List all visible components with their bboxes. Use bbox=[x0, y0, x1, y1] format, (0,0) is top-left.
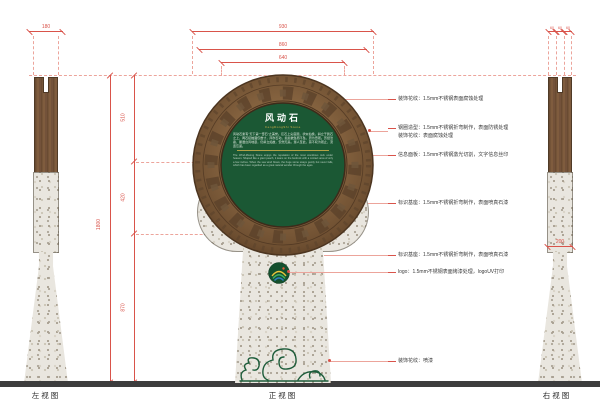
front-height-total-value: 1800 bbox=[97, 219, 102, 230]
front-height-mid-value: 420 bbox=[122, 193, 127, 201]
wave-pattern bbox=[238, 342, 330, 382]
annotation-decor-pattern-ring: 装饰花纹：1.5mm不锈钢表面腐蚀处理 bbox=[398, 96, 483, 104]
right-view-base bbox=[538, 252, 582, 383]
left-view-width-dimension: 180 bbox=[29, 31, 63, 32]
front-outer-width-value: 930 bbox=[192, 25, 374, 30]
annotation-base-upper: 标识基座：1.5mm不锈钢折弯制作，表面喷真石漆 bbox=[398, 200, 508, 208]
extension-line bbox=[58, 36, 59, 75]
sign-info-panel: 风动石 FengDongShi Stone 风动石素有“天下第一奇石”之美誉。巨… bbox=[221, 104, 345, 228]
extension-line bbox=[571, 36, 572, 75]
annotation-decor-etching: 装饰花纹：表面腐蚀处理 bbox=[398, 133, 453, 141]
extension-line bbox=[556, 36, 557, 75]
extension-line bbox=[373, 36, 374, 74]
sign-title: 风动石 bbox=[233, 113, 333, 124]
extension-line bbox=[192, 36, 193, 74]
front-height-top-value: 510 bbox=[122, 113, 127, 121]
left-view-width-value: 180 bbox=[29, 25, 63, 30]
left-view-base bbox=[24, 252, 68, 383]
leader-line bbox=[289, 272, 388, 273]
extension-line bbox=[33, 36, 34, 75]
left-view-fork-notch bbox=[43, 77, 49, 93]
annotation-logo: logo：1.5mm不锈钢表面烤漆处理，logoUV打印 bbox=[398, 269, 504, 277]
right-view-waist-dimension: 200 bbox=[547, 246, 573, 247]
height-chain-inner-line bbox=[134, 75, 135, 383]
front-ring-width-value: 860 bbox=[199, 43, 367, 48]
sign-subtitle: FengDongShi Stone bbox=[233, 125, 333, 129]
front-height-bottom-value: 870 bbox=[122, 303, 127, 311]
right-view-fork-notch bbox=[557, 77, 563, 93]
front-face-width-value: 640 bbox=[221, 56, 345, 61]
leader-line bbox=[330, 361, 388, 362]
height-chain-outer-line bbox=[110, 75, 111, 383]
extension-line bbox=[548, 36, 549, 75]
engineering-drawing: 180 510 420 870 1800 930 860 640 bbox=[0, 0, 600, 406]
annotation-info-panel: 信息面板：1.5mm不锈钢激光切割，文字信息丝印 bbox=[398, 152, 508, 160]
leader-dot bbox=[328, 359, 331, 362]
sign-body-english: The Wind-Moving Stone enjoys the reputat… bbox=[233, 154, 333, 167]
annotation-base-pattern-paint: 装饰花纹：喷漆 bbox=[398, 358, 433, 366]
right-view-leg-dimension: 60 bbox=[564, 31, 572, 32]
left-view-granite-block bbox=[33, 172, 59, 253]
front-outer-width-dimension: 930 bbox=[192, 31, 374, 32]
front-view-label: 正视图 bbox=[253, 390, 313, 401]
leader-dot bbox=[287, 270, 290, 273]
left-view-label: 左视图 bbox=[16, 390, 76, 401]
right-waist-value: 200 bbox=[547, 240, 573, 245]
pedestal-logo-icon bbox=[268, 262, 290, 284]
right-view-label: 右视图 bbox=[527, 390, 587, 401]
annotation-steel-ring: 钢圈造型：1.5mm不锈钢折弯制作，表面防锈处理 bbox=[398, 125, 508, 133]
front-face-width-dimension: 640 bbox=[221, 62, 345, 63]
annotation-base-lower: 标识基座：1.5mm不锈钢折弯制作，表面喷真石漆 bbox=[398, 252, 508, 260]
right-top-dim-c: 60 bbox=[564, 27, 572, 31]
front-ring-width-dimension: 860 bbox=[199, 49, 367, 50]
extension-line bbox=[564, 36, 565, 75]
sign-body-chinese: 风动石素有“天下第一奇石”之美誉。巨石上尖底圆，状似仙桃，斜立于磐石之上，两石接… bbox=[233, 132, 333, 148]
sign-divider bbox=[237, 150, 329, 151]
